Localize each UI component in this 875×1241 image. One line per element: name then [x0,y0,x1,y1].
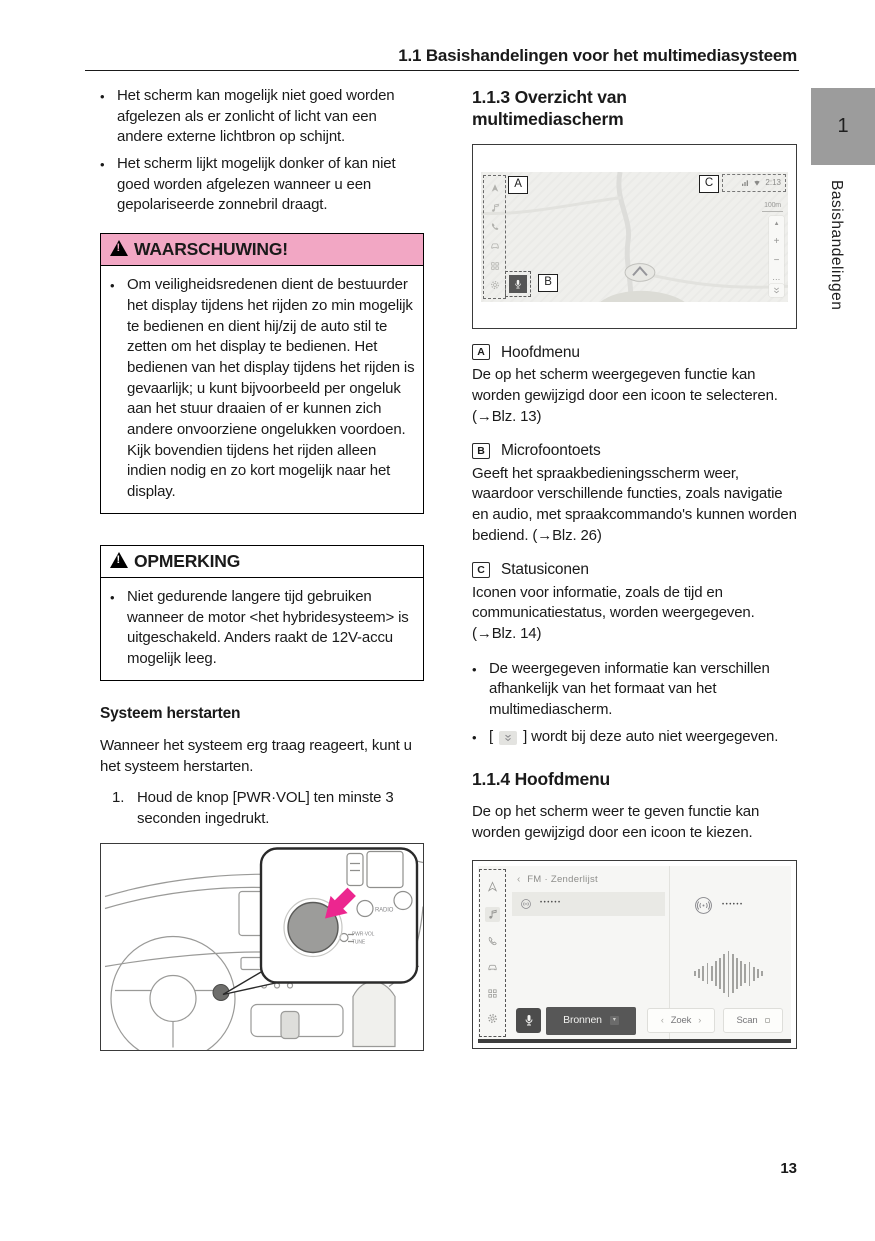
item-body: Iconen voor informatie, zoals de tijd en… [472,583,797,645]
callout-c-label: C [699,175,719,193]
note-box-body: • Niet gedurende langere tijd gebruiken … [101,578,423,680]
clock-text: 2:13 [765,177,781,188]
note-box: OPMERKING • Niet gedurende langere tijd … [100,545,424,681]
item-body: De op het scherm weergegeven functie kan… [472,365,797,427]
warning-box: WAARSCHUWING! • Om veiligheidsredenen di… [100,233,424,514]
list-item: • De weergegeven informatie kan verschil… [472,659,797,721]
breadcrumb-text: FM · Zenderlijst [527,873,598,886]
callout-b-label: B [538,274,558,292]
page-header-title: 1.1 Basishandelingen voor het multimedia… [100,46,797,66]
compass-icon: ▲ [774,220,780,228]
step-number: 1. [112,788,130,829]
status-icons-area: 2:13 [722,174,786,192]
note-box-title: OPMERKING [134,549,240,573]
section-113-heading: 1.1.3 Overzicht van multimediascherm [472,86,727,131]
zoek-button: ‹ Zoek › [647,1008,715,1033]
bullet-dot: • [472,727,480,748]
scan-label: Scan [736,1014,757,1027]
warning-box-header: WAARSCHUWING! [101,234,423,266]
bullet-text: Niet gedurende langere tijd gebruiken wa… [127,587,415,670]
bullet-dot: • [100,154,108,216]
signal-icon [741,179,749,187]
map-scale-label: 100m [762,201,783,213]
map-controls: ▲ + − ⋯ [769,216,784,290]
zoom-out-icon: − [774,256,780,266]
bullet-text: De weergegeven informatie kan verschille… [489,659,797,721]
gear-icon [490,280,500,290]
warning-triangle-icon [110,552,128,568]
item-body: Geeft het spraakbedieningsscherm weer, w… [472,464,797,547]
map-screen: A B C 2:13 100m ▲ + [481,172,788,302]
key-chip-b: B [472,443,490,459]
main-menu-sidebar [483,175,506,299]
multimedia-screen-figure: A B C 2:13 100m ▲ + [472,144,797,329]
hoofdmenu-figure: ‹ FM · Zenderlijst •••••• •••••• [472,860,797,1049]
item-title: Microfoontoets [501,440,601,461]
page-number: 13 [780,1160,797,1177]
section-114-heading: 1.1.4 Hoofdmenu [472,768,797,790]
bullet-text: [ ] wordt bij deze auto niet weergegeven… [489,727,778,748]
list-item: • Niet gedurende langere tijd gebruiken … [110,587,415,670]
microphone-key [505,271,531,297]
chevron-left-icon: ‹ [661,1014,664,1026]
network-icon [753,179,761,187]
callout-a-label: A [508,176,528,194]
header-rule [85,70,799,71]
station-list-item: •••••• [512,892,665,916]
breadcrumb: ‹ FM · Zenderlijst [517,873,598,887]
sound-wave [678,946,779,1002]
music-icon-active [485,907,500,922]
double-chevron-down-icon [499,731,517,745]
bullet-text: Het scherm lijkt mogelijk donker of kan … [117,154,424,216]
warning-box-title: WAARSCHUWING! [134,237,288,261]
dashboard-illustration: RADIO PWR·VOL TUNE [101,844,423,1050]
item-hoofdmenu: A Hoofdmenu De op het scherm weergegeven… [472,342,797,427]
list-item: • Om veiligheidsredenen dient de bestuur… [110,275,415,503]
radio-broadcast-icon [520,898,532,910]
warning-triangle-icon [110,240,128,256]
apps-grid-icon [490,261,500,271]
chapter-side-label: Basishandelingen [827,180,845,310]
back-chevron-icon: ‹ [517,873,520,887]
restart-step: 1. Houd de knop [PWR·VOL] ten minste 3 s… [100,788,424,829]
dropdown-icon: ▾ [610,1016,619,1025]
bullet-dot: • [110,587,118,670]
label-pwr-vol: PWR·VOL [352,931,375,937]
microphone-button [516,1008,541,1033]
label-radio: RADIO [375,907,394,913]
phone-icon [487,936,498,947]
restart-heading: Systeem herstarten [100,703,424,724]
right-column: 1.1.3 Overzicht van multimediascherm [472,86,797,1049]
phone-icon [490,222,500,232]
item-title: Hoofdmenu [501,342,580,363]
apps-grid-icon [487,988,498,999]
item-title: Statusiconen [501,559,589,580]
bullet-text: Om veiligheidsredenen dient de bestuurde… [127,275,415,503]
notes-list: • De weergegeven informatie kan verschil… [472,659,797,748]
step-text: Houd de knop [PWR·VOL] ten minste 3 seco… [137,788,424,829]
navigation-icon [487,881,498,892]
list-item: • [ ] wordt bij deze auto niet weergegev… [472,727,797,748]
bracket-open: [ [489,728,493,745]
manual-page: 1.1 Basishandelingen voor het multimedia… [0,0,875,1241]
restart-intro: Wanneer het systeem erg traag reageert, … [100,736,424,777]
list-item: • Het scherm kan mogelijk niet goed word… [100,86,424,148]
bullet-dot: • [472,659,480,721]
now-playing-source: •••••• [694,896,744,915]
chevron-right-icon: › [698,1014,701,1026]
car-icon [490,241,500,251]
left-column: • Het scherm kan mogelijk niet goed word… [100,86,424,1051]
gear-icon [487,1013,498,1024]
key-chip-a: A [472,344,490,360]
microphone-icon [523,1014,535,1026]
item-microfoontoets: B Microfoontoets Geeft het spraakbedieni… [472,440,797,546]
zoom-in-icon: + [774,237,780,247]
list-item: • Het scherm lijkt mogelijk donker of ka… [100,154,424,216]
scan-indicator-icon [765,1018,770,1023]
key-chip-c: C [472,562,490,578]
music-icon [490,203,500,213]
main-menu-sidebar [479,869,506,1037]
zoek-label: Zoek [671,1014,692,1027]
radio-broadcast-icon [694,896,713,915]
fm-screen: ‹ FM · Zenderlijst •••••• •••••• [478,866,791,1043]
note-box-header: OPMERKING [101,546,423,578]
source-name-dots: •••••• [722,901,744,909]
bracket-close-text: ] wordt bij deze auto niet weergegeven. [523,728,778,745]
bronnen-label: Bronnen [563,1013,602,1027]
warning-box-body: • Om veiligheidsredenen dient de bestuur… [101,266,423,513]
navigation-icon [490,183,500,193]
scan-button: Scan [723,1008,783,1033]
bullet-dot: • [110,275,118,503]
dashboard-figure: RADIO PWR·VOL TUNE [100,843,424,1051]
chapter-tab: 1 [811,88,875,165]
music-icon [487,909,498,920]
bullet-dot: • [100,86,108,148]
microphone-icon [509,275,527,293]
bronnen-button: Bronnen ▾ [546,1007,636,1035]
car-icon [487,962,498,973]
label-tune: TUNE [352,939,366,945]
station-name-dots: •••••• [540,899,562,907]
bullet-text: Het scherm kan mogelijk niet goed worden… [117,86,424,148]
double-chevron-down-icon [769,284,784,297]
item-statusiconen: C Statusiconen Iconen voor informatie, z… [472,559,797,644]
section-114-body: De op het scherm weer te geven functie k… [472,802,797,843]
